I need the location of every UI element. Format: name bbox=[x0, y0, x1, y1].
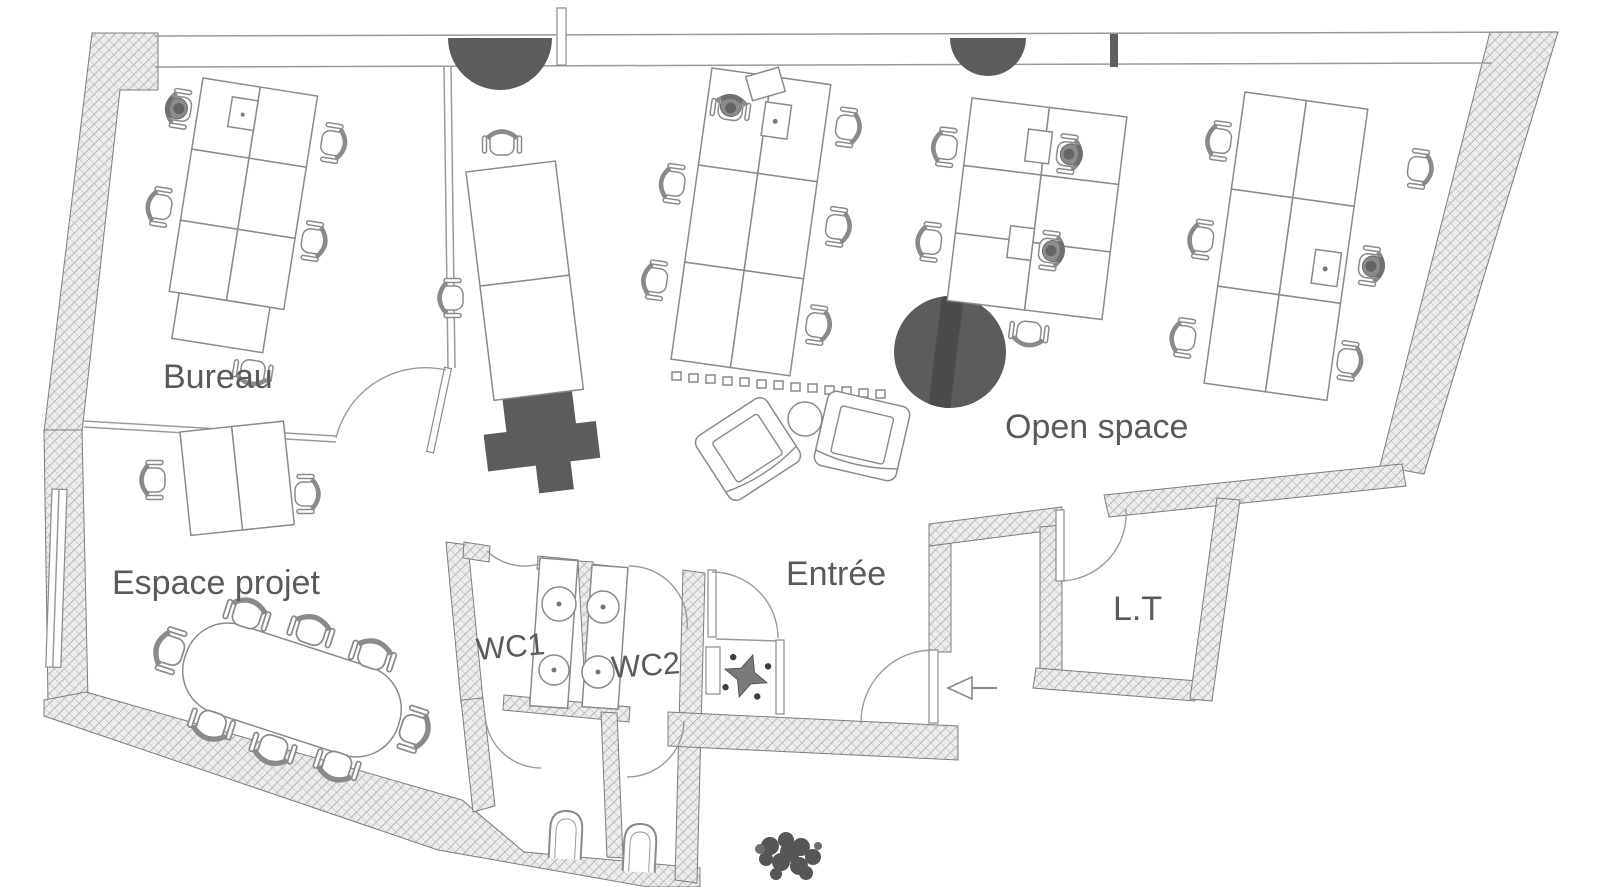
bush-blob bbox=[755, 844, 765, 854]
desk bbox=[226, 229, 295, 309]
room-label-wc2: WC2 bbox=[610, 645, 681, 685]
lt-wall-right bbox=[1190, 498, 1240, 701]
sink-drain bbox=[601, 605, 606, 610]
wc2-door-arc bbox=[629, 566, 687, 629]
dot-square bbox=[740, 378, 749, 386]
armchair bbox=[813, 390, 912, 483]
sink-drain bbox=[596, 670, 601, 675]
desk bbox=[1293, 101, 1368, 207]
arrow-head-icon bbox=[948, 677, 972, 699]
small-desk-pair bbox=[466, 161, 583, 400]
entry-arrow bbox=[948, 677, 997, 699]
star-plant-icon bbox=[718, 648, 773, 703]
desk bbox=[1265, 295, 1340, 401]
wall-right-outer bbox=[1380, 32, 1558, 474]
chair bbox=[299, 220, 329, 262]
plant-dot bbox=[721, 683, 729, 691]
closet-door-leaf bbox=[708, 570, 716, 637]
dot-square bbox=[774, 381, 783, 389]
dot-square bbox=[706, 375, 715, 383]
chair bbox=[483, 131, 522, 155]
occupied-chair bbox=[164, 87, 194, 129]
bush-blob bbox=[799, 866, 813, 880]
bush-blob bbox=[759, 852, 773, 866]
dot-square bbox=[876, 390, 885, 398]
plant-dot bbox=[729, 653, 737, 661]
bottom-bush-plant bbox=[755, 832, 822, 880]
entry-door-arc bbox=[861, 650, 933, 723]
desk bbox=[169, 220, 238, 300]
desk bbox=[180, 149, 249, 229]
dot-square bbox=[791, 383, 800, 391]
room-label-wc1: WC1 bbox=[475, 626, 547, 667]
bush-blob bbox=[805, 849, 821, 865]
dot-square bbox=[757, 380, 766, 388]
projet-desk-pair bbox=[180, 421, 294, 535]
floor-plan-canvas: Bureau bbox=[0, 0, 1620, 887]
center-desk-cluster bbox=[632, 53, 870, 381]
bureau-partition-line2 bbox=[451, 67, 455, 368]
lounge-area bbox=[672, 372, 911, 504]
desk bbox=[238, 158, 307, 238]
bureau-partition-line1 bbox=[444, 67, 448, 368]
monitor bbox=[1007, 226, 1035, 261]
chair bbox=[439, 279, 463, 318]
chair bbox=[931, 126, 960, 168]
wc1-door-arc bbox=[487, 551, 539, 566]
desk bbox=[480, 275, 583, 400]
occupied-chair bbox=[1356, 245, 1386, 287]
chair bbox=[1335, 340, 1364, 382]
wc-wall-left bbox=[446, 542, 483, 703]
chair bbox=[1186, 218, 1215, 260]
openspace-desk-cluster-right bbox=[1165, 87, 1439, 411]
bureau-room: Bureau bbox=[122, 73, 352, 396]
desk bbox=[744, 173, 817, 278]
stall1-door-arc bbox=[485, 713, 541, 768]
dot-square bbox=[723, 377, 732, 385]
chair bbox=[144, 186, 174, 228]
chair bbox=[804, 304, 833, 346]
room-label-lt: L.T bbox=[1113, 590, 1162, 628]
facade-stub bbox=[557, 8, 566, 65]
entree-area: Entrée bbox=[706, 555, 997, 714]
wc-stall-divider bbox=[601, 712, 623, 858]
facade-mullion bbox=[1110, 34, 1118, 67]
chair bbox=[658, 163, 687, 205]
wc-wall-left-lower bbox=[461, 698, 495, 812]
chair bbox=[823, 206, 852, 248]
plant-dot bbox=[764, 662, 772, 670]
large-plant-disc bbox=[894, 293, 1006, 413]
desk bbox=[249, 87, 318, 167]
armchair bbox=[692, 394, 804, 503]
floor-plan: Bureau bbox=[0, 0, 1620, 887]
entree-bottom-wall bbox=[668, 712, 958, 760]
chair bbox=[640, 259, 669, 301]
column-icon bbox=[950, 0, 1026, 76]
desk bbox=[1025, 242, 1111, 319]
chair bbox=[1169, 317, 1198, 359]
lt-wall-bottom bbox=[1033, 668, 1198, 701]
desk bbox=[730, 270, 803, 375]
room-label-open-space: Open space bbox=[1005, 408, 1188, 446]
closet-right-wall bbox=[776, 640, 784, 714]
chair bbox=[319, 122, 349, 164]
lounge-round-table bbox=[788, 402, 822, 436]
bureau-desk-cluster bbox=[122, 73, 352, 393]
chair bbox=[1008, 319, 1050, 348]
sink-drain bbox=[557, 602, 562, 607]
room-label-bureau: Bureau bbox=[163, 358, 273, 396]
sink-drain bbox=[552, 668, 557, 673]
monitor bbox=[1025, 129, 1053, 164]
toilet-icon bbox=[623, 823, 657, 873]
lt-door-leaf bbox=[1056, 510, 1064, 581]
bush-blob bbox=[814, 842, 822, 850]
chair bbox=[295, 475, 319, 514]
desk bbox=[466, 161, 569, 286]
desk bbox=[232, 421, 295, 530]
wall-diagonal-openspace bbox=[1104, 464, 1406, 517]
bush-blob bbox=[780, 842, 800, 862]
closet-door-arc bbox=[712, 572, 778, 638]
dot-square bbox=[672, 372, 681, 380]
chair bbox=[833, 107, 862, 149]
plant-dot bbox=[753, 692, 761, 700]
closet-top-line bbox=[716, 639, 778, 641]
lt-door-arc bbox=[1060, 509, 1126, 581]
wc-wall-top-corner bbox=[463, 542, 490, 562]
toilet-icon bbox=[549, 810, 583, 860]
chair bbox=[1204, 120, 1233, 162]
top-facade-outer-line bbox=[155, 32, 1556, 36]
chair bbox=[141, 461, 165, 500]
bush-blob bbox=[770, 868, 782, 880]
top-facade-inner-line bbox=[155, 63, 1492, 67]
desk bbox=[1041, 108, 1127, 185]
lt-room: L.T bbox=[1113, 590, 1162, 628]
dot-square bbox=[859, 389, 868, 397]
bureau-door-arc bbox=[336, 368, 446, 438]
closet-plant bbox=[718, 648, 773, 703]
chair bbox=[1405, 148, 1434, 190]
room-label-espace-projet: Espace projet bbox=[112, 564, 320, 602]
closet-shelf bbox=[706, 647, 720, 694]
dot-square bbox=[808, 384, 817, 392]
dot-square bbox=[689, 374, 698, 382]
column-icon bbox=[448, 0, 552, 90]
room-label-entree: Entrée bbox=[786, 555, 886, 593]
bureau-door-leaf bbox=[427, 367, 452, 453]
dotted-divider bbox=[672, 372, 885, 398]
wall-left-upper bbox=[44, 33, 158, 432]
entry-door-leaf bbox=[929, 650, 938, 723]
chair bbox=[915, 221, 944, 263]
